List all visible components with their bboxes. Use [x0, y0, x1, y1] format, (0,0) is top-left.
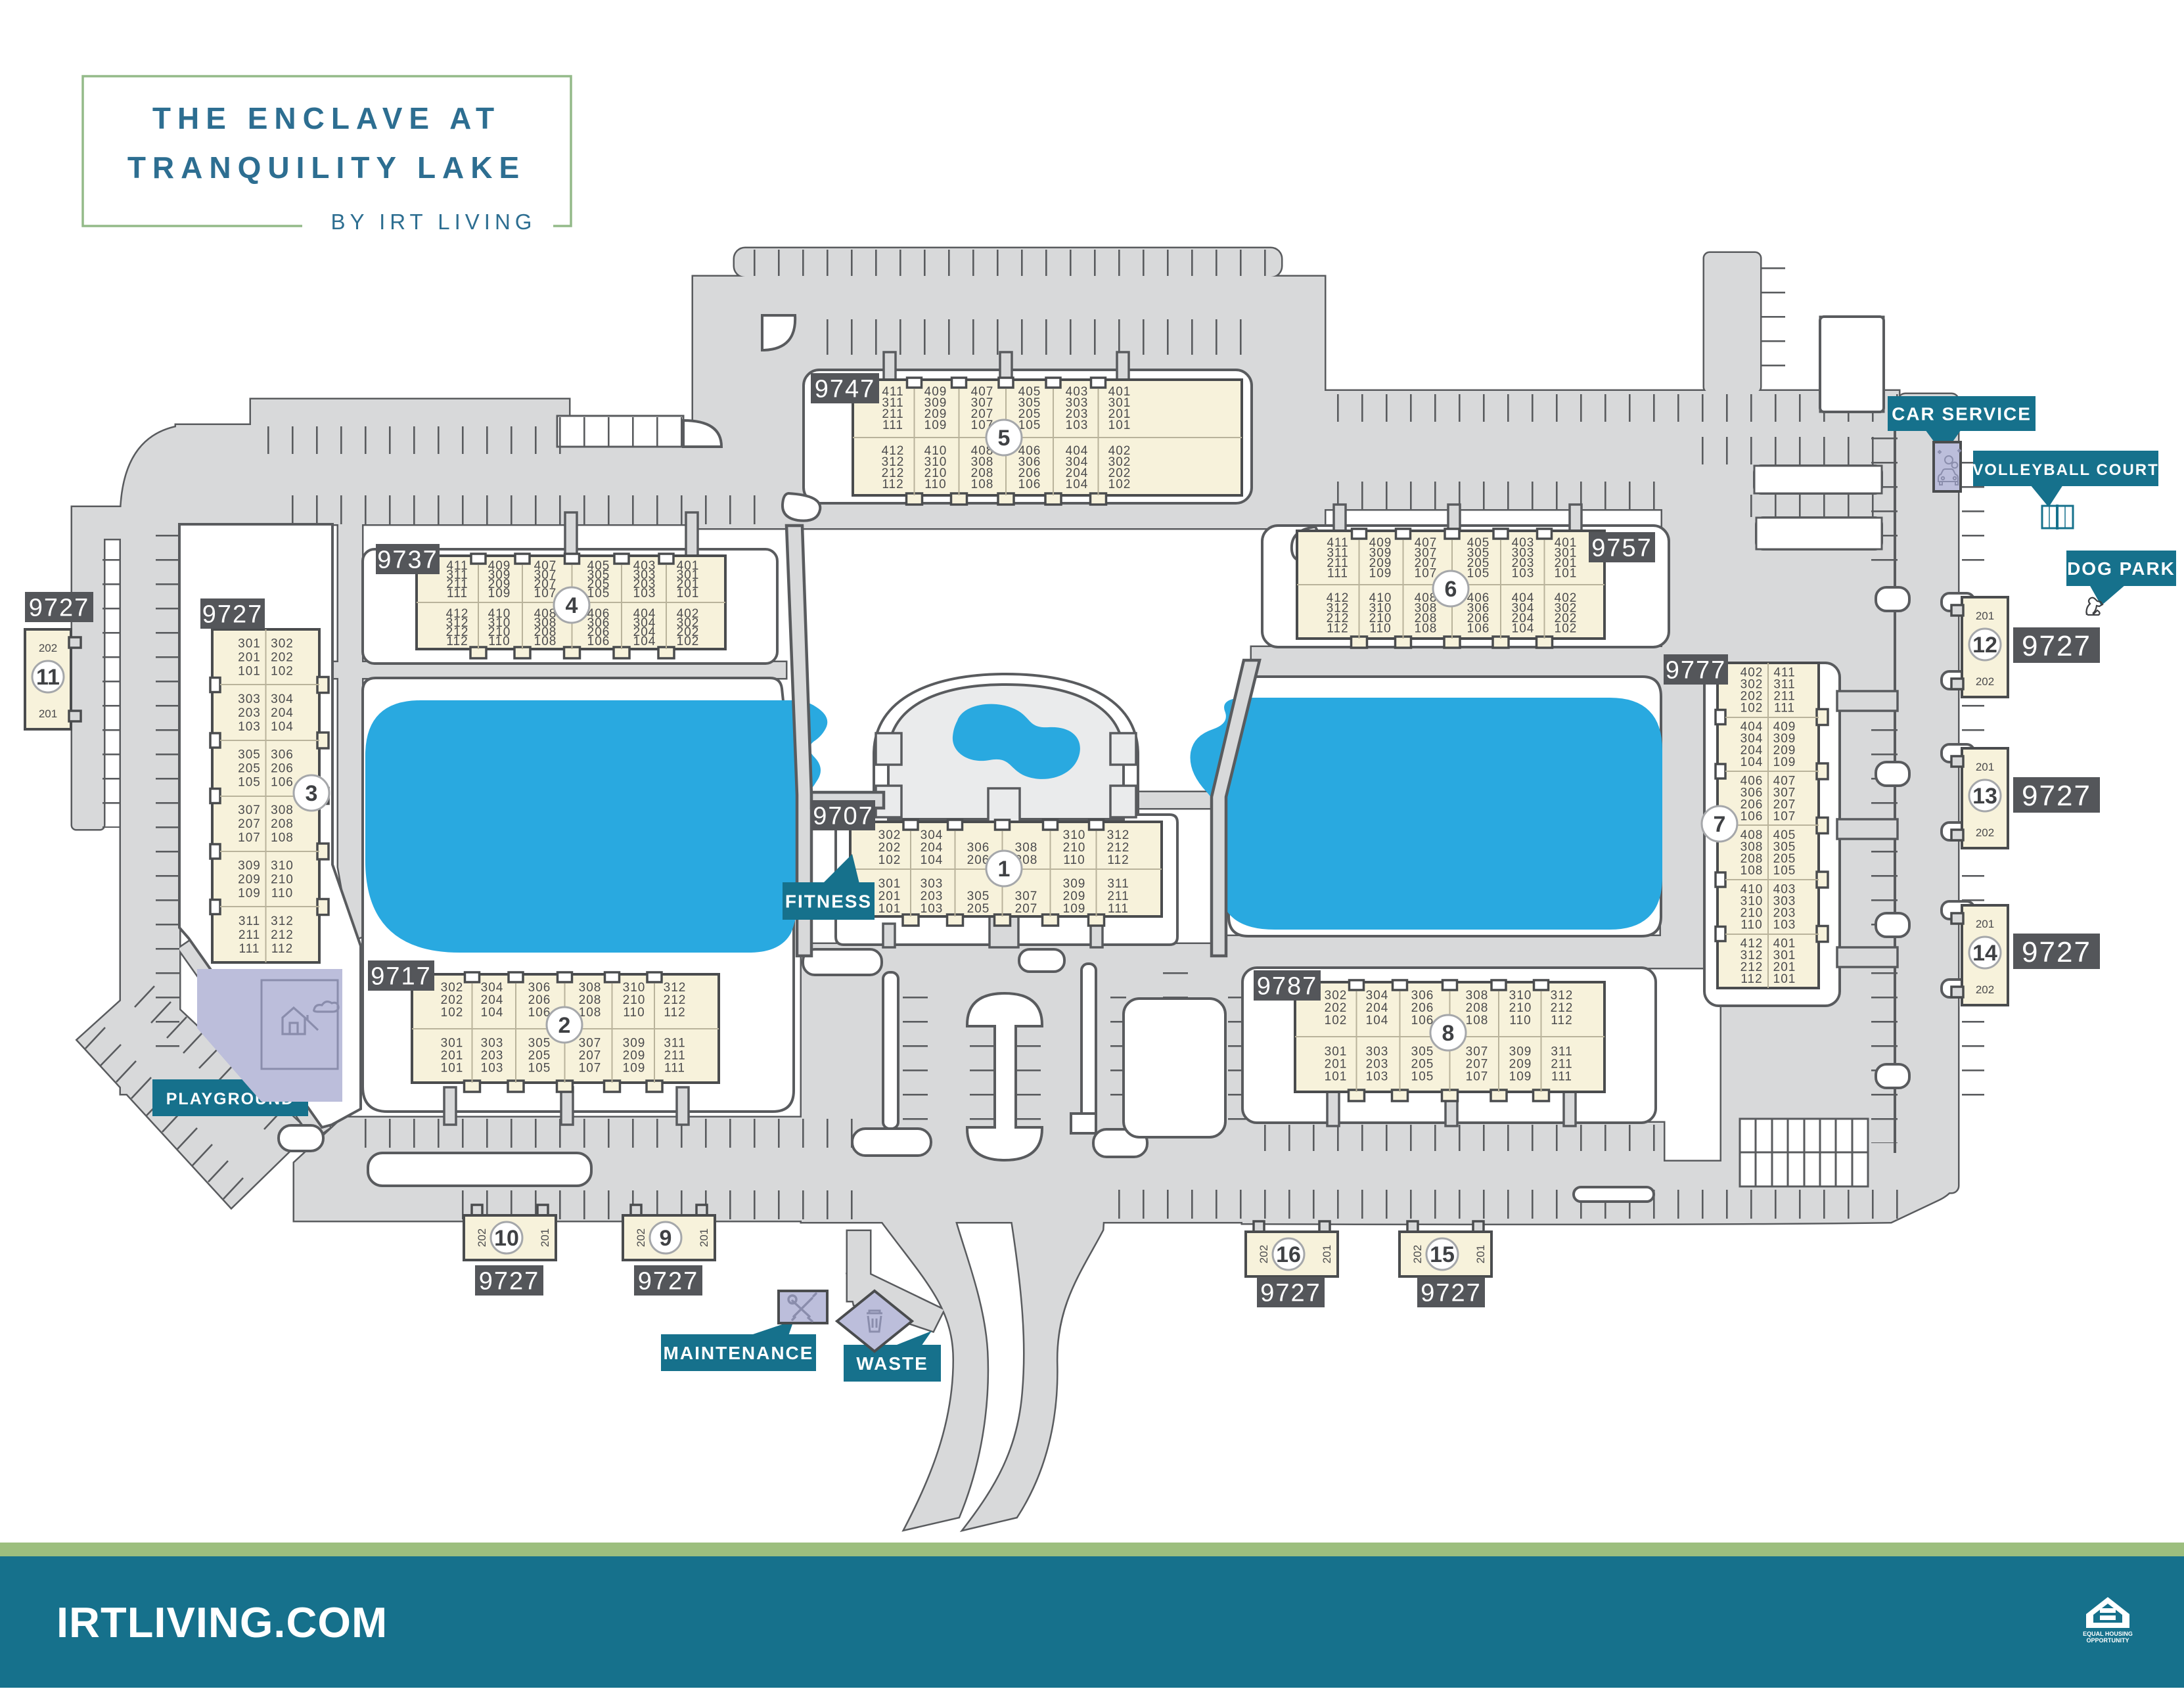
svg-text:9707: 9707 [813, 803, 874, 830]
svg-text:103: 103 [921, 902, 944, 916]
svg-text:201: 201 [39, 708, 57, 720]
svg-text:12: 12 [1972, 633, 1997, 658]
svg-text:107: 107 [1466, 1070, 1489, 1084]
svg-text:201: 201 [1321, 1245, 1333, 1263]
svg-text:CAR SERVICE: CAR SERVICE [1892, 404, 2032, 424]
svg-text:110: 110 [1369, 622, 1391, 636]
svg-text:301: 301 [238, 637, 261, 650]
svg-text:105: 105 [1467, 567, 1490, 581]
svg-text:305: 305 [238, 748, 261, 761]
svg-text:3: 3 [306, 781, 318, 806]
svg-text:111: 111 [882, 418, 903, 432]
svg-text:4: 4 [566, 593, 578, 618]
svg-text:307: 307 [1466, 1045, 1489, 1059]
svg-text:109: 109 [623, 1062, 646, 1075]
svg-text:101: 101 [1108, 418, 1131, 432]
svg-text:103: 103 [1366, 1070, 1389, 1084]
svg-text:306: 306 [528, 981, 551, 995]
svg-text:112: 112 [664, 1006, 685, 1020]
svg-text:311: 311 [1107, 877, 1129, 891]
svg-text:EQUAL HOUSING: EQUAL HOUSING [2083, 1631, 2133, 1637]
svg-text:201: 201 [1976, 610, 1994, 622]
svg-text:201: 201 [441, 1049, 464, 1063]
svg-text:202: 202 [1325, 1001, 1348, 1015]
svg-text:310: 310 [271, 859, 294, 872]
svg-text:202: 202 [635, 1229, 647, 1247]
svg-text:112: 112 [1551, 1014, 1572, 1027]
svg-text:203: 203 [921, 890, 944, 903]
svg-text:106: 106 [271, 775, 294, 789]
svg-text:307: 307 [579, 1037, 602, 1050]
svg-text:108: 108 [579, 1006, 602, 1020]
svg-text:104: 104 [633, 635, 656, 648]
svg-text:112: 112 [446, 635, 468, 648]
svg-text:209: 209 [1063, 890, 1086, 903]
svg-text:204: 204 [481, 993, 504, 1007]
svg-text:14: 14 [1972, 941, 1997, 966]
svg-text:204: 204 [1366, 1001, 1389, 1015]
svg-text:103: 103 [633, 587, 656, 600]
svg-text:303: 303 [238, 692, 261, 706]
svg-text:210: 210 [623, 993, 646, 1007]
svg-text:303: 303 [481, 1037, 504, 1050]
svg-text:102: 102 [677, 635, 700, 648]
svg-text:305: 305 [1411, 1045, 1434, 1059]
svg-text:110: 110 [271, 886, 293, 900]
svg-text:310: 310 [1509, 989, 1532, 1003]
svg-text:110: 110 [488, 635, 510, 648]
svg-text:202: 202 [1976, 983, 1994, 996]
svg-text:WASTE: WASTE [856, 1353, 928, 1374]
svg-text:104: 104 [1512, 622, 1535, 636]
svg-text:202: 202 [39, 642, 57, 654]
svg-text:106: 106 [1411, 1014, 1434, 1027]
svg-text:16: 16 [1276, 1242, 1301, 1267]
svg-text:111: 111 [447, 587, 468, 600]
svg-text:103: 103 [1512, 567, 1535, 581]
svg-text:201: 201 [539, 1229, 551, 1247]
svg-text:102: 102 [1325, 1014, 1348, 1027]
svg-text:202: 202 [1411, 1245, 1424, 1263]
svg-text:109: 109 [924, 418, 947, 432]
svg-text:108: 108 [534, 635, 557, 648]
svg-text:8: 8 [1442, 1021, 1455, 1046]
svg-text:112: 112 [1740, 972, 1762, 986]
svg-text:102: 102 [271, 664, 294, 678]
svg-text:101: 101 [441, 1062, 464, 1075]
svg-text:302: 302 [271, 637, 294, 650]
svg-text:306: 306 [271, 748, 294, 761]
svg-text:308: 308 [1466, 989, 1489, 1003]
svg-text:104: 104 [481, 1006, 504, 1020]
svg-text:304: 304 [1366, 989, 1389, 1003]
svg-text:202: 202 [441, 993, 464, 1007]
svg-text:206: 206 [528, 993, 551, 1007]
svg-text:202: 202 [271, 650, 294, 664]
svg-text:111: 111 [1551, 1070, 1572, 1084]
svg-text:201: 201 [878, 890, 901, 903]
svg-text:101: 101 [238, 664, 261, 678]
svg-text:205: 205 [528, 1049, 551, 1063]
svg-text:210: 210 [1063, 841, 1086, 855]
svg-text:10: 10 [494, 1226, 519, 1251]
svg-text:106: 106 [1467, 622, 1490, 636]
svg-text:302: 302 [1325, 989, 1348, 1003]
svg-text:101: 101 [1325, 1070, 1348, 1084]
svg-text:104: 104 [1740, 755, 1763, 769]
svg-text:202: 202 [476, 1229, 488, 1247]
svg-text:208: 208 [579, 993, 602, 1007]
svg-text:201: 201 [1474, 1245, 1487, 1263]
svg-text:6: 6 [1445, 577, 1457, 602]
svg-text:210: 210 [1509, 1001, 1532, 1015]
svg-text:309: 309 [238, 859, 261, 872]
svg-text:309: 309 [1509, 1045, 1532, 1059]
svg-text:312: 312 [1107, 828, 1130, 842]
svg-text:9717: 9717 [371, 963, 432, 991]
svg-text:101: 101 [1555, 567, 1578, 581]
svg-text:206: 206 [1411, 1001, 1434, 1015]
svg-text:302: 302 [878, 828, 901, 842]
svg-text:301: 301 [878, 877, 901, 891]
svg-text:201: 201 [1325, 1058, 1348, 1071]
svg-text:9737: 9737 [377, 547, 438, 574]
svg-text:110: 110 [623, 1006, 645, 1020]
svg-text:108: 108 [971, 478, 994, 491]
svg-text:309: 309 [623, 1037, 646, 1050]
svg-text:111: 111 [1774, 701, 1795, 715]
svg-text:101: 101 [677, 587, 700, 600]
svg-text:102: 102 [441, 1006, 464, 1020]
svg-text:9727: 9727 [1260, 1280, 1321, 1307]
svg-text:105: 105 [1773, 864, 1796, 878]
svg-text:307: 307 [1015, 890, 1038, 903]
svg-text:15: 15 [1430, 1242, 1455, 1267]
svg-text:MAINTENANCE: MAINTENANCE [664, 1343, 814, 1363]
svg-text:104: 104 [271, 720, 294, 734]
svg-text:312: 312 [664, 981, 687, 995]
svg-text:201: 201 [698, 1229, 710, 1247]
svg-text:103: 103 [1066, 418, 1089, 432]
svg-text:304: 304 [271, 692, 294, 706]
svg-text:308: 308 [271, 803, 294, 817]
svg-text:104: 104 [921, 853, 944, 867]
svg-text:111: 111 [664, 1062, 685, 1075]
svg-text:107: 107 [534, 587, 557, 600]
svg-text:304: 304 [921, 828, 944, 842]
svg-text:204: 204 [921, 841, 944, 855]
svg-text:104: 104 [1366, 1014, 1389, 1027]
svg-text:202: 202 [1976, 826, 1994, 839]
svg-text:107: 107 [579, 1062, 602, 1075]
svg-text:311: 311 [1551, 1045, 1572, 1059]
svg-text:209: 209 [1509, 1058, 1532, 1071]
svg-text:9727: 9727 [479, 1268, 540, 1296]
svg-text:110: 110 [1740, 918, 1762, 932]
svg-text:103: 103 [481, 1062, 504, 1075]
svg-text:FITNESS: FITNESS [785, 891, 872, 912]
svg-text:211: 211 [1551, 1058, 1572, 1071]
svg-text:108: 108 [1740, 864, 1763, 878]
svg-text:111: 111 [1327, 567, 1348, 581]
svg-text:109: 109 [1063, 902, 1086, 916]
svg-text:303: 303 [921, 877, 944, 891]
svg-text:11: 11 [36, 665, 60, 690]
svg-text:5: 5 [998, 426, 1011, 451]
svg-text:9757: 9757 [1591, 535, 1652, 562]
svg-text:210: 210 [271, 872, 294, 886]
svg-text:104: 104 [1066, 478, 1089, 491]
svg-text:112: 112 [882, 478, 903, 491]
svg-text:201: 201 [1976, 918, 1994, 930]
svg-text:9787: 9787 [1257, 973, 1318, 1001]
svg-text:208: 208 [271, 817, 294, 831]
svg-text:13: 13 [1972, 784, 1997, 809]
svg-text:305: 305 [967, 890, 990, 903]
svg-text:301: 301 [441, 1037, 464, 1050]
svg-text:308: 308 [579, 981, 602, 995]
svg-text:105: 105 [587, 587, 610, 600]
svg-text:302: 302 [441, 981, 464, 995]
svg-text:OPPORTUNITY: OPPORTUNITY [2086, 1637, 2129, 1644]
svg-text:102: 102 [878, 853, 901, 867]
svg-text:203: 203 [1366, 1058, 1389, 1071]
svg-text:303: 303 [1366, 1045, 1389, 1059]
svg-text:108: 108 [1466, 1014, 1489, 1027]
svg-text:9: 9 [660, 1226, 672, 1251]
svg-text:108: 108 [1415, 622, 1438, 636]
svg-text:202: 202 [878, 841, 901, 855]
svg-text:112: 112 [1107, 853, 1129, 867]
svg-text:101: 101 [878, 902, 901, 916]
svg-text:209: 209 [238, 872, 261, 886]
svg-text:103: 103 [238, 720, 261, 734]
svg-text:312: 312 [1551, 989, 1574, 1003]
svg-text:207: 207 [238, 817, 261, 831]
svg-text:105: 105 [1018, 418, 1041, 432]
svg-text:112: 112 [271, 942, 293, 956]
svg-text:202: 202 [1976, 675, 1994, 688]
svg-text:9727: 9727 [1421, 1280, 1482, 1307]
svg-text:304: 304 [481, 981, 504, 995]
svg-text:105: 105 [238, 775, 261, 789]
svg-text:9727: 9727 [638, 1268, 699, 1296]
svg-text:9727: 9727 [2022, 630, 2091, 662]
svg-text:109: 109 [1773, 755, 1796, 769]
svg-text:311: 311 [664, 1037, 685, 1050]
svg-text:212: 212 [1551, 1001, 1574, 1015]
svg-text:107: 107 [1773, 809, 1796, 823]
svg-text:310: 310 [1063, 828, 1086, 842]
svg-text:205: 205 [1411, 1058, 1434, 1071]
svg-text:106: 106 [1018, 478, 1041, 491]
svg-text:110: 110 [1063, 853, 1085, 867]
svg-text:106: 106 [587, 635, 610, 648]
svg-text:305: 305 [528, 1037, 551, 1050]
svg-text:207: 207 [1015, 902, 1038, 916]
svg-text:208: 208 [1466, 1001, 1489, 1015]
svg-text:111: 111 [239, 942, 260, 956]
svg-text:205: 205 [967, 902, 990, 916]
svg-text:109: 109 [488, 587, 511, 600]
svg-text:101: 101 [1773, 972, 1796, 986]
svg-text:109: 109 [238, 886, 261, 900]
svg-text:IRTLIVING.COM: IRTLIVING.COM [57, 1598, 388, 1646]
svg-text:310: 310 [623, 981, 646, 995]
svg-text:102: 102 [1108, 478, 1131, 491]
svg-text:110: 110 [924, 478, 946, 491]
svg-text:9747: 9747 [815, 376, 876, 403]
svg-text:109: 109 [1509, 1070, 1532, 1084]
svg-text:306: 306 [1411, 989, 1434, 1003]
svg-text:9777: 9777 [1666, 657, 1727, 685]
svg-text:105: 105 [528, 1062, 551, 1075]
svg-text:106: 106 [1740, 809, 1763, 823]
svg-text:209: 209 [623, 1049, 646, 1063]
svg-text:9727: 9727 [202, 601, 263, 629]
svg-text:2: 2 [558, 1013, 571, 1038]
svg-text:TRANQUILITY LAKE: TRANQUILITY LAKE [127, 150, 526, 185]
svg-text:207: 207 [579, 1049, 602, 1063]
svg-text:301: 301 [1325, 1045, 1348, 1059]
svg-text:201: 201 [238, 650, 261, 664]
svg-text:211: 211 [664, 1049, 685, 1063]
svg-text:212: 212 [271, 928, 294, 942]
svg-text:102: 102 [1555, 622, 1578, 636]
svg-text:308: 308 [1015, 841, 1038, 855]
svg-text:THE ENCLAVE AT: THE ENCLAVE AT [152, 101, 501, 135]
svg-text:102: 102 [1740, 701, 1763, 715]
svg-text:307: 307 [238, 803, 261, 817]
svg-text:BY IRT LIVING: BY IRT LIVING [331, 210, 537, 234]
svg-text:312: 312 [271, 914, 294, 928]
svg-text:109: 109 [1369, 567, 1392, 581]
svg-text:9727: 9727 [29, 595, 90, 622]
svg-text:212: 212 [664, 993, 687, 1007]
svg-text:111: 111 [1108, 902, 1129, 916]
svg-text:107: 107 [238, 831, 261, 845]
svg-text:108: 108 [271, 831, 294, 845]
svg-text:203: 203 [481, 1049, 504, 1063]
svg-text:204: 204 [271, 706, 294, 720]
svg-text:VOLLEYBALL COURT: VOLLEYBALL COURT [1972, 461, 2159, 479]
svg-text:1: 1 [998, 857, 1011, 882]
svg-text:DOG PARK: DOG PARK [2067, 558, 2175, 579]
svg-text:202: 202 [1258, 1245, 1270, 1263]
svg-text:9727: 9727 [2022, 780, 2091, 812]
svg-text:103: 103 [1773, 918, 1796, 932]
svg-text:205: 205 [238, 761, 261, 775]
svg-text:306: 306 [967, 841, 990, 855]
svg-text:9727: 9727 [2022, 936, 2091, 968]
svg-text:207: 207 [1466, 1058, 1489, 1071]
svg-text:112: 112 [1327, 622, 1348, 636]
svg-text:206: 206 [271, 761, 294, 775]
svg-text:211: 211 [239, 928, 260, 942]
svg-text:107: 107 [1415, 567, 1438, 581]
svg-text:201: 201 [1976, 761, 1994, 773]
svg-text:309: 309 [1063, 877, 1086, 891]
svg-text:110: 110 [1509, 1014, 1531, 1027]
svg-text:211: 211 [1107, 890, 1129, 903]
svg-text:203: 203 [238, 706, 261, 720]
svg-text:7: 7 [1714, 812, 1726, 837]
svg-text:311: 311 [239, 914, 260, 928]
svg-text:105: 105 [1411, 1070, 1434, 1084]
svg-text:212: 212 [1107, 841, 1130, 855]
